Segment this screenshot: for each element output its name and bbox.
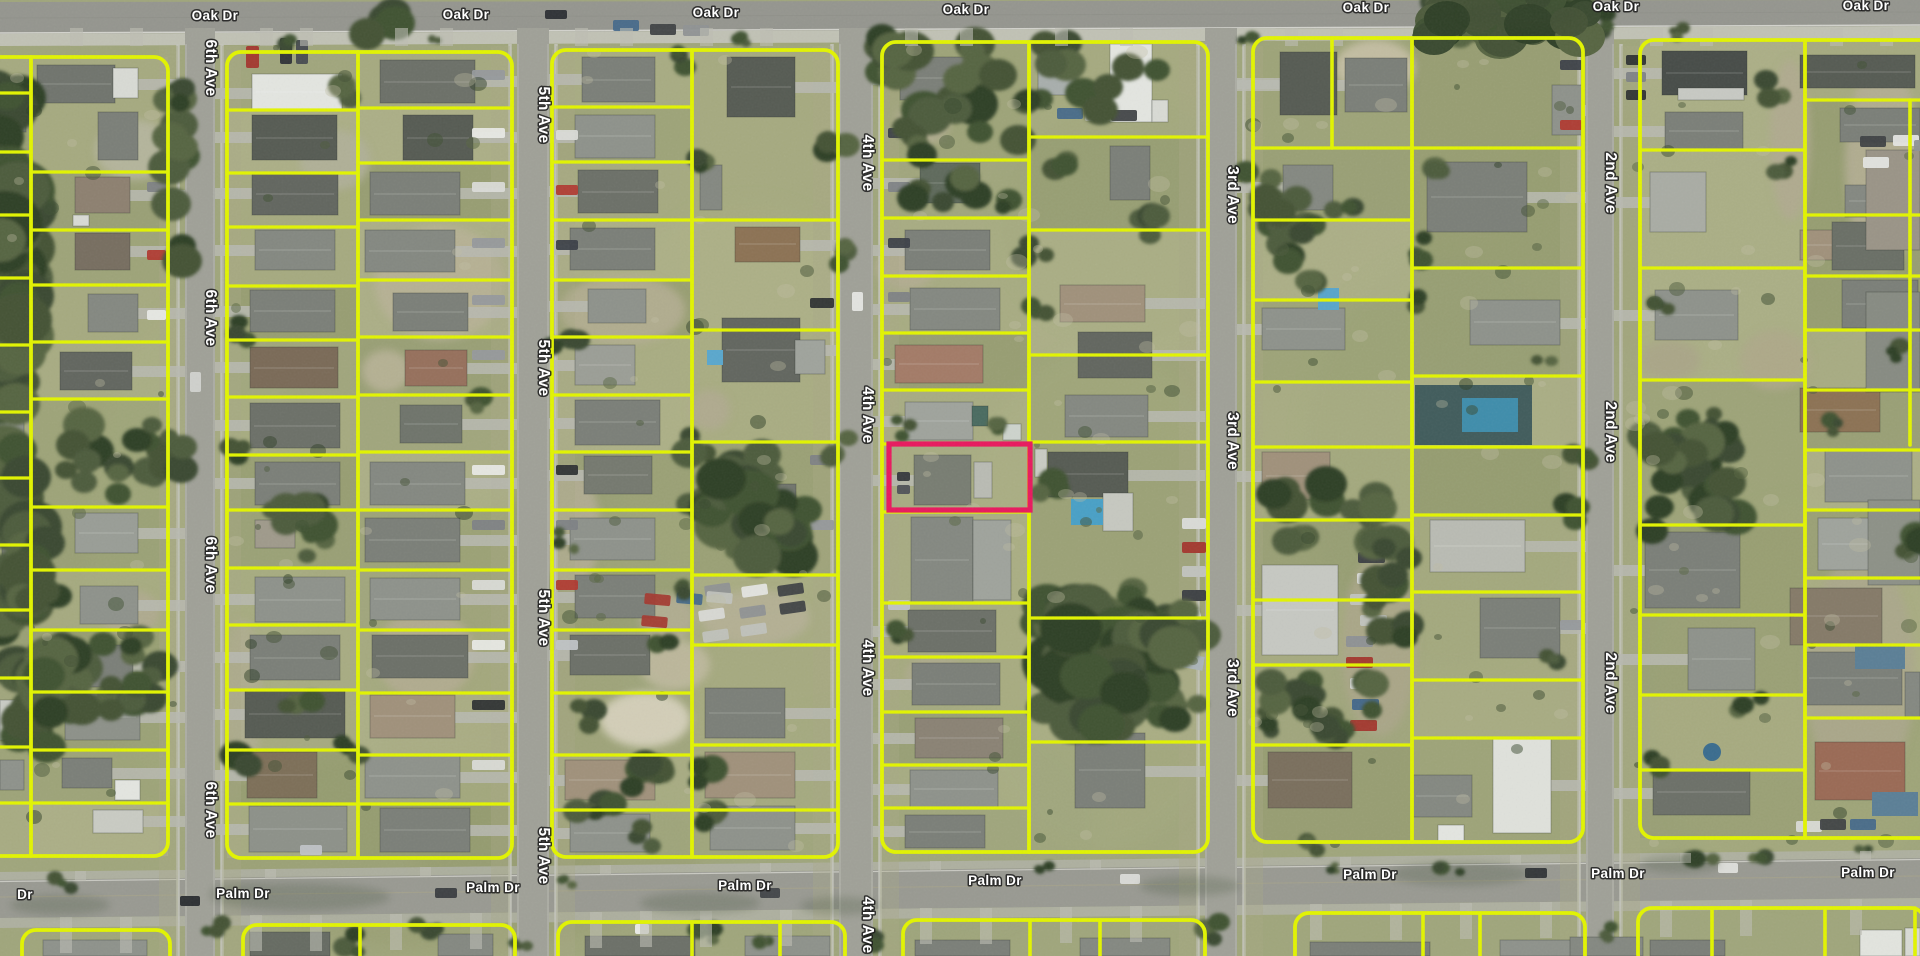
svg-text:Oak Dr: Oak Dr [943,2,990,17]
svg-text:Oak Dr: Oak Dr [1843,0,1890,13]
svg-text:6th Ave: 6th Ave [202,40,219,97]
svg-text:Oak Dr: Oak Dr [693,5,740,20]
svg-text:4th Ave: 4th Ave [859,135,876,192]
svg-text:Palm Dr: Palm Dr [1343,867,1397,882]
svg-text:5th Ave: 5th Ave [535,87,552,144]
svg-text:Palm Dr: Palm Dr [216,886,270,901]
svg-text:5th Ave: 5th Ave [535,590,552,647]
svg-text:Dr: Dr [17,887,33,902]
svg-text:3rd Ave: 3rd Ave [1224,659,1241,717]
svg-text:Palm Dr: Palm Dr [718,878,772,893]
svg-text:Palm Dr: Palm Dr [1591,866,1645,881]
svg-text:6th Ave: 6th Ave [202,290,219,347]
svg-text:6th Ave: 6th Ave [202,537,219,594]
svg-text:Palm Dr: Palm Dr [968,873,1022,888]
svg-text:5th Ave: 5th Ave [535,340,552,397]
svg-text:6th Ave: 6th Ave [202,782,219,839]
svg-text:Oak Dr: Oak Dr [1343,0,1390,15]
svg-text:Oak Dr: Oak Dr [1593,0,1640,14]
svg-text:Oak Dr: Oak Dr [192,8,239,23]
svg-text:5th Ave: 5th Ave [535,828,552,885]
svg-text:3rd Ave: 3rd Ave [1224,166,1241,224]
svg-text:2nd Ave: 2nd Ave [1602,152,1619,213]
svg-text:Palm Dr: Palm Dr [466,880,520,895]
svg-text:Palm Dr: Palm Dr [1841,865,1895,880]
svg-text:4th Ave: 4th Ave [859,897,876,954]
svg-text:Oak Dr: Oak Dr [443,7,490,22]
svg-text:3rd Ave: 3rd Ave [1224,412,1241,470]
svg-text:2nd Ave: 2nd Ave [1602,401,1619,462]
svg-text:4th Ave: 4th Ave [859,640,876,697]
svg-text:4th Ave: 4th Ave [859,387,876,444]
svg-text:2nd Ave: 2nd Ave [1602,652,1619,713]
